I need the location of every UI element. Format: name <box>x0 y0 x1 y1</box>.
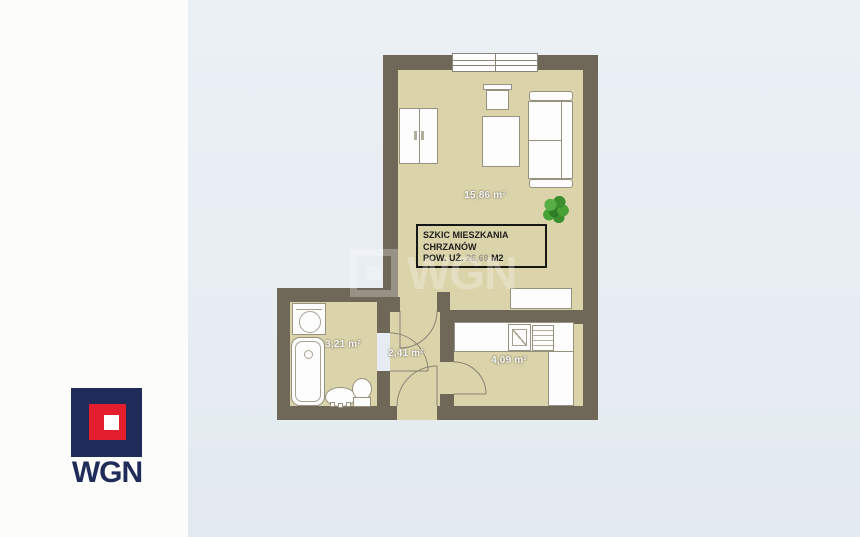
sink-tap <box>330 402 335 407</box>
wall-bathroom-left <box>277 288 290 420</box>
wall-right <box>583 55 598 420</box>
sofa-armrest-bottom <box>529 179 573 188</box>
small-table <box>486 90 509 110</box>
fridge-counter <box>548 351 574 406</box>
kitchen-sink <box>508 324 531 351</box>
bed <box>482 116 520 167</box>
living-room-area-label: 15,86 m² <box>450 190 520 201</box>
entrance-threshold <box>397 406 437 420</box>
wall-divider-bottom <box>377 371 390 406</box>
washing-machine <box>292 303 326 335</box>
plant-icon <box>542 195 570 223</box>
sofa <box>528 91 574 188</box>
wall-divider-top <box>377 302 390 333</box>
sketch-title-line1: SZKIC MIESZKANIA <box>423 230 540 242</box>
wall-bottom-right <box>437 406 598 420</box>
sofa-cushion-line <box>529 140 561 141</box>
wgn-logo-white-square <box>104 415 119 430</box>
sink-tap <box>346 402 351 407</box>
sink-tap <box>338 403 343 408</box>
kitchen-area-label: 4,09 m² <box>480 355 538 366</box>
wgn-logo-text: WGN <box>62 456 152 490</box>
hallway-area-label: 2,41 m² <box>380 348 432 359</box>
wall-kitchen-left-top <box>440 310 454 362</box>
wall-kitchen-left-bottom <box>440 394 454 406</box>
wardrobe <box>399 108 438 164</box>
window <box>452 53 538 72</box>
wgn-watermark-text: WGN <box>407 246 516 300</box>
wgn-watermark-square-icon <box>350 249 398 297</box>
toilet-tank <box>353 397 371 407</box>
stove <box>532 325 554 351</box>
sofa-backrest <box>561 101 573 179</box>
wgn-watermark: WGN <box>350 246 516 300</box>
wall-bottom-left <box>277 406 397 420</box>
bathroom-area-label: 3,21 m² <box>316 339 370 350</box>
sideboard <box>510 288 572 309</box>
sofa-armrest-top <box>529 91 573 101</box>
